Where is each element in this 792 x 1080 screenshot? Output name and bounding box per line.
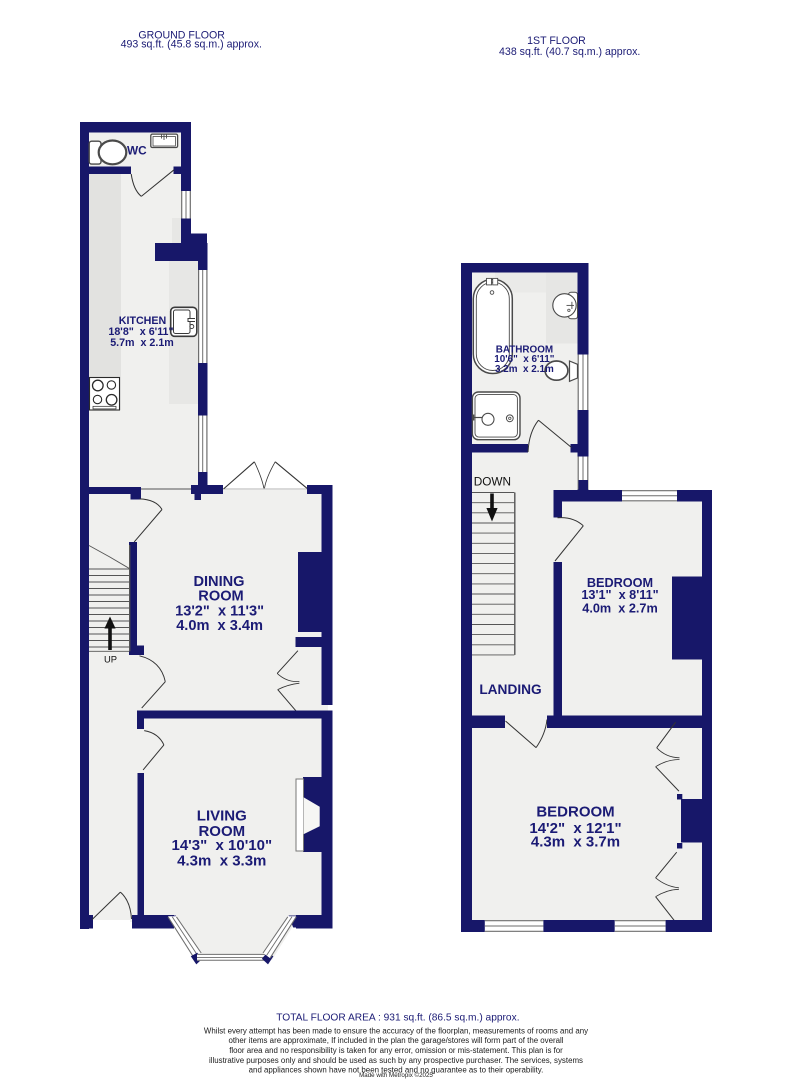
svg-text:DOWN: DOWN xyxy=(474,475,511,489)
svg-text:493 sq.ft. (45.8 sq.m.) approx: 493 sq.ft. (45.8 sq.m.) approx. xyxy=(121,39,262,51)
svg-text:4.0m x 2.7m: 4.0m x 2.7m xyxy=(582,601,657,615)
svg-text:13'2" x 11'3": 13'2" x 11'3" xyxy=(175,603,264,619)
svg-text:13'1" x 8'11": 13'1" x 8'11" xyxy=(581,588,658,602)
svg-text:4.0m x 3.4m: 4.0m x 3.4m xyxy=(176,618,263,634)
svg-text:illustrative purposes only and: illustrative purposes only and should be… xyxy=(209,1056,583,1065)
svg-text:438 sq.ft. (40.7 sq.m.) approx: 438 sq.ft. (40.7 sq.m.) approx. xyxy=(499,46,640,58)
svg-text:BEDROOM: BEDROOM xyxy=(536,803,614,820)
svg-text:LIVING: LIVING xyxy=(197,807,247,824)
svg-text:5.7m x 2.1m: 5.7m x 2.1m xyxy=(110,337,174,349)
svg-text:LANDING: LANDING xyxy=(479,682,541,697)
svg-text:ROOM: ROOM xyxy=(198,589,243,605)
svg-text:UP: UP xyxy=(104,654,117,665)
svg-text:4.3m x 3.7m: 4.3m x 3.7m xyxy=(531,834,620,851)
svg-text:Made with Metropix ©2025: Made with Metropix ©2025 xyxy=(359,1072,433,1079)
svg-text:Whilst every attempt has been: Whilst every attempt has been made to en… xyxy=(204,1026,588,1035)
svg-text:WC: WC xyxy=(127,143,147,157)
svg-text:floor area and no responsibili: floor area and no responsibility is take… xyxy=(229,1046,563,1055)
svg-text:3.2m x 2.1m: 3.2m x 2.1m xyxy=(495,364,554,375)
svg-text:DINING: DINING xyxy=(193,574,244,590)
svg-text:other items are approximate, I: other items are approximate, If included… xyxy=(228,1036,563,1045)
svg-text:TOTAL FLOOR AREA : 931 sq.ft.: TOTAL FLOOR AREA : 931 sq.ft. (86.5 sq.m… xyxy=(276,1012,519,1023)
svg-text:KITCHEN: KITCHEN xyxy=(119,315,167,327)
svg-text:4.3m x 3.3m: 4.3m x 3.3m xyxy=(177,852,266,869)
